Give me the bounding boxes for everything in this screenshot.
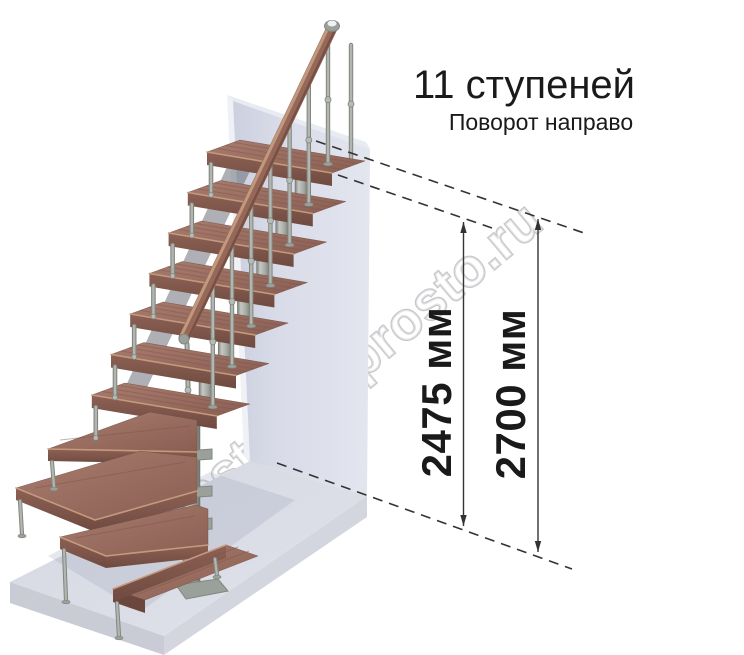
page-title: 11 ступеней bbox=[413, 63, 635, 107]
dimension-label-2700: 2700 мм bbox=[487, 309, 534, 480]
staircase-diagram-page: lestnicy-prosto.ru 2475 мм 2700 мм 11 ст… bbox=[0, 0, 744, 655]
staircase-diagram: lestnicy-prosto.ru 2475 мм 2700 мм 11 ст… bbox=[0, 0, 744, 655]
dimension-label-2475: 2475 мм bbox=[413, 307, 460, 478]
page-subtitle: Поворот направо bbox=[449, 109, 633, 135]
